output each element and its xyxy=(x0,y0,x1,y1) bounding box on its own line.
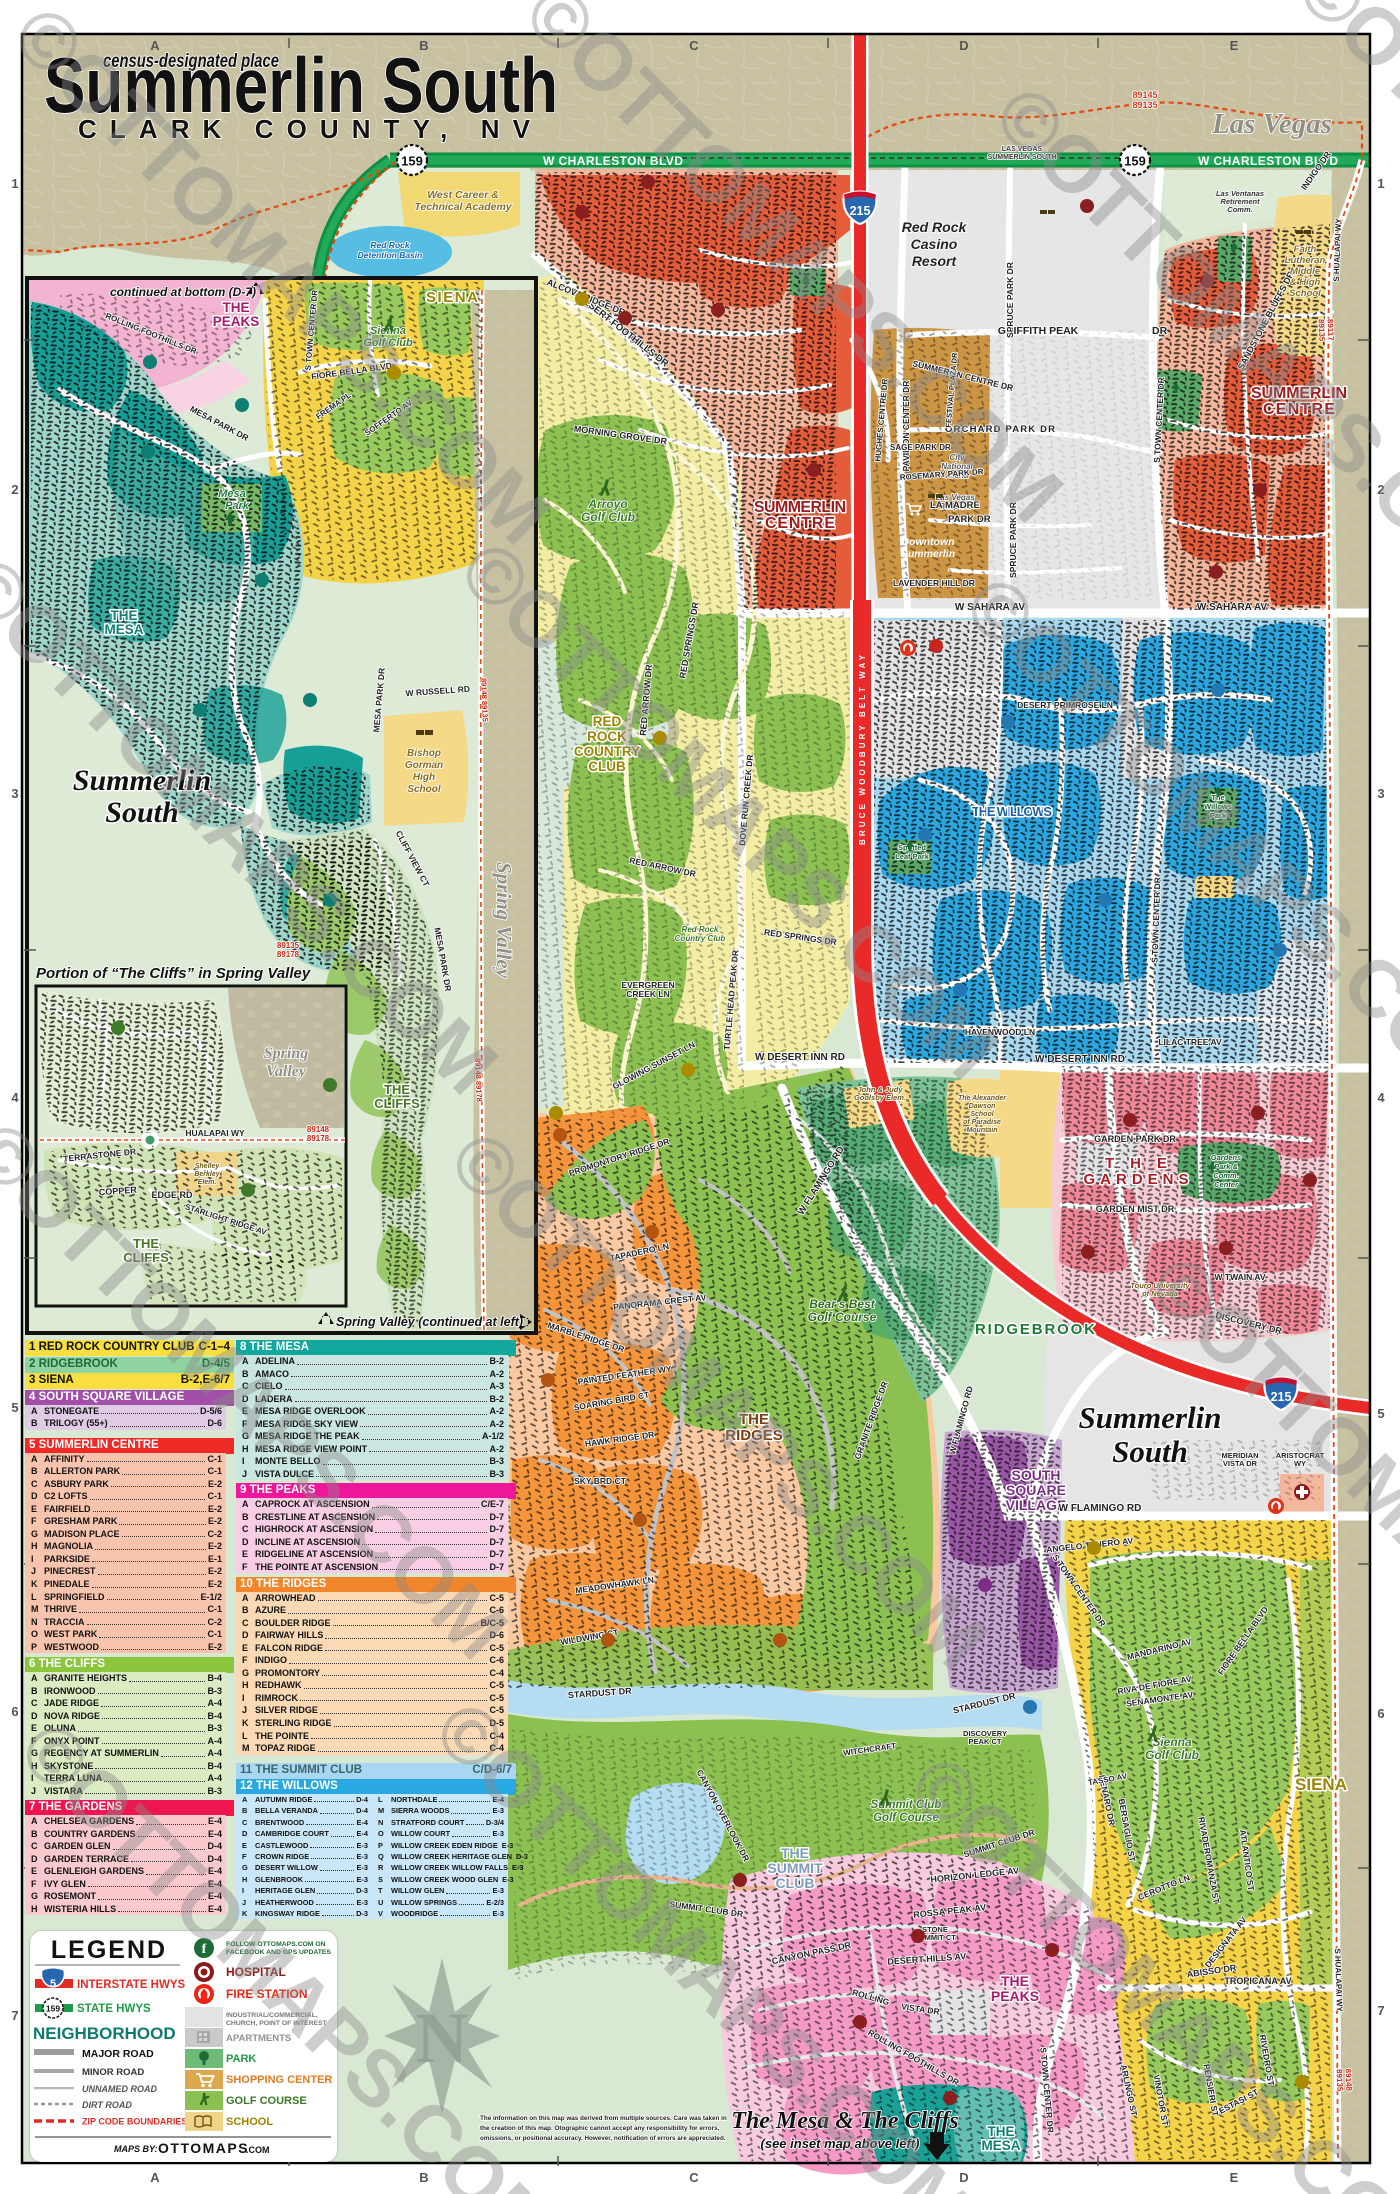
svg-text:CLUB: CLUB xyxy=(588,759,626,774)
svg-text:West Career &: West Career & xyxy=(427,189,499,201)
svg-text:Elem.: Elem. xyxy=(198,1179,217,1186)
svg-text:W DESERT INN RD: W DESERT INN RD xyxy=(755,1052,845,1063)
svg-text:W TWAIN AV: W TWAIN AV xyxy=(1215,1272,1266,1282)
svg-text:W DESERT INN RD: W DESERT INN RD xyxy=(1035,1054,1125,1065)
svg-text:continued at bottom (D-7): continued at bottom (D-7) xyxy=(110,285,256,299)
svg-text:WY: WY xyxy=(1294,1459,1306,1468)
svg-text:CLARK COUNTY, NV: CLARK COUNTY, NV xyxy=(78,114,531,144)
svg-text:LAS VEGAS: LAS VEGAS xyxy=(1002,146,1043,153)
svg-text:INTERSTATE HWYS: INTERSTATE HWYS xyxy=(77,1979,186,1991)
svg-text:CENTRE: CENTRE xyxy=(1263,401,1335,418)
svg-text:THE: THE xyxy=(781,1845,809,1861)
svg-text:DESERT PRIMROSE LN: DESERT PRIMROSE LN xyxy=(1017,700,1113,710)
svg-text:THE: THE xyxy=(988,2124,1015,2139)
svg-text:Golf Club: Golf Club xyxy=(1145,1748,1199,1762)
svg-text:159: 159 xyxy=(46,2004,60,2014)
svg-text:Dawson: Dawson xyxy=(969,1103,996,1110)
svg-text:Summerlin: Summerlin xyxy=(901,548,955,560)
svg-text:SUMMIT: SUMMIT xyxy=(767,1860,823,1876)
svg-text:7: 7 xyxy=(1377,2003,1384,2018)
svg-text:SOUTH: SOUTH xyxy=(1012,1467,1061,1483)
svg-text:89145: 89145 xyxy=(1132,90,1157,100)
svg-text:1: 1 xyxy=(1377,176,1384,191)
svg-text:Red Rock: Red Rock xyxy=(902,219,968,235)
svg-text:APARTMENTS: APARTMENTS xyxy=(226,2033,291,2044)
svg-text:ZIP CODE BOUNDARIES: ZIP CODE BOUNDARIES xyxy=(82,2117,187,2127)
svg-text:3: 3 xyxy=(11,786,18,801)
svg-text:2: 2 xyxy=(11,482,18,497)
svg-text:Las Vegas: Las Vegas xyxy=(1211,108,1332,140)
svg-text:B: B xyxy=(419,2170,428,2185)
svg-text:Technical Academy: Technical Academy xyxy=(414,201,512,213)
svg-text:89135: 89135 xyxy=(1317,319,1327,342)
svg-text:SAGE PARK DR: SAGE PARK DR xyxy=(890,443,951,452)
svg-text:CLUB: CLUB xyxy=(776,1875,815,1891)
svg-text:SPRUCE PARK DR: SPRUCE PARK DR xyxy=(1005,262,1015,338)
svg-text:Spring: Spring xyxy=(264,1045,308,1062)
svg-text:& High: & High xyxy=(1290,277,1321,288)
svg-text:School: School xyxy=(407,784,441,795)
svg-text:Golf Course: Golf Course xyxy=(873,1812,939,1824)
svg-text:SIENA: SIENA xyxy=(426,289,478,306)
svg-text:5: 5 xyxy=(50,1978,56,1990)
svg-text:159: 159 xyxy=(401,154,423,169)
svg-text:Red Rock: Red Rock xyxy=(370,240,410,250)
svg-text:Country Club: Country Club xyxy=(675,934,726,943)
svg-text:89148 89178: 89148 89178 xyxy=(473,1058,484,1102)
svg-text:5: 5 xyxy=(11,1400,18,1415)
svg-text:South: South xyxy=(105,796,178,829)
svg-text:Goolsby Elem.: Goolsby Elem. xyxy=(854,1093,906,1102)
svg-text:NEIGHBORHOOD: NEIGHBORHOOD xyxy=(33,2024,176,2043)
svg-text:3: 3 xyxy=(1377,786,1384,801)
svg-text:Berkley: Berkley xyxy=(194,1171,220,1178)
svg-text:LAVENDER HILL DR: LAVENDER HILL DR xyxy=(893,578,975,588)
svg-text:Middle: Middle xyxy=(1290,266,1321,277)
svg-text:6: 6 xyxy=(1377,1706,1384,1721)
svg-text:SUMMERLIN: SUMMERLIN xyxy=(1251,385,1347,402)
svg-text:The Alexander: The Alexander xyxy=(958,1095,1007,1102)
svg-text:DR: DR xyxy=(1152,325,1168,337)
svg-text:PEAK CT: PEAK CT xyxy=(969,1737,1002,1746)
svg-text:Comm.: Comm. xyxy=(1213,1171,1238,1180)
svg-text:GARDENS: GARDENS xyxy=(1084,1171,1189,1188)
svg-text:OTTOMAPS: OTTOMAPS xyxy=(158,2140,249,2156)
svg-text:Bishop: Bishop xyxy=(407,748,441,759)
svg-text:Faith: Faith xyxy=(1294,244,1317,255)
svg-text:Shelley: Shelley xyxy=(195,1163,221,1170)
svg-text:Spring Valley (continued at le: Spring Valley (continued at left) xyxy=(336,1315,523,1329)
svg-text:A: A xyxy=(150,38,160,53)
svg-text:THE: THE xyxy=(739,1411,769,1428)
svg-text:4: 4 xyxy=(11,1090,19,1105)
svg-text:Summerlin: Summerlin xyxy=(73,764,211,797)
svg-text:Leaf Park: Leaf Park xyxy=(895,852,930,861)
svg-text:HOSPITAL: HOSPITAL xyxy=(226,1965,286,1979)
svg-text:Gorman: Gorman xyxy=(405,760,443,771)
svg-text:Comm.: Comm. xyxy=(1227,205,1252,214)
svg-text:FIRE STATION: FIRE STATION xyxy=(226,1987,308,2001)
svg-text:Center: Center xyxy=(1214,1180,1239,1189)
svg-text:Resort: Resort xyxy=(912,253,958,269)
svg-text:STATE HWYS: STATE HWYS xyxy=(77,2003,151,2015)
svg-text:2: 2 xyxy=(1377,482,1384,497)
svg-text:A: A xyxy=(150,2170,160,2185)
svg-text:The Mesa & The Cliffs: The Mesa & The Cliffs xyxy=(731,2108,959,2134)
svg-text:Downtown: Downtown xyxy=(901,536,954,548)
svg-text:LILAC TREE AV: LILAC TREE AV xyxy=(1158,1037,1222,1047)
svg-text:W FLAMINGO RD: W FLAMINGO RD xyxy=(1059,1503,1142,1514)
svg-text:The information on this map wa: The information on this map was derived … xyxy=(480,2115,727,2122)
svg-text:MINOR ROAD: MINOR ROAD xyxy=(82,2067,144,2078)
svg-text:(see inset map above left): (see inset map above left) xyxy=(761,2136,920,2151)
svg-text:89148 89135: 89148 89135 xyxy=(479,678,490,722)
svg-text:Park &: Park & xyxy=(1214,1162,1238,1171)
svg-text:Park: Park xyxy=(225,500,250,512)
svg-text:D: D xyxy=(959,38,968,53)
svg-text:4: 4 xyxy=(1377,1090,1385,1105)
svg-text:School: School xyxy=(970,1111,994,1118)
svg-text:PARK DR: PARK DR xyxy=(948,514,991,525)
svg-text:W SAHARA AV: W SAHARA AV xyxy=(955,602,1026,613)
svg-text:CREEK LN: CREEK LN xyxy=(626,989,669,999)
svg-text:CHURCH, POINT OF INTEREST: CHURCH, POINT OF INTEREST xyxy=(226,2020,328,2027)
svg-text:VISTA DR: VISTA DR xyxy=(1223,1459,1258,1468)
svg-text:Spring Valley: Spring Valley xyxy=(492,862,516,979)
svg-text:Willows: Willows xyxy=(1204,802,1232,811)
svg-text:High: High xyxy=(413,772,435,783)
svg-text:Park: Park xyxy=(1210,811,1227,820)
svg-text:W CHARLESTON BLVD: W CHARLESTON BLVD xyxy=(543,154,683,168)
svg-text:215: 215 xyxy=(850,204,871,218)
svg-text:RIDGES: RIDGES xyxy=(725,1427,783,1444)
svg-text:Red Rock: Red Rock xyxy=(682,925,719,934)
svg-text:E: E xyxy=(1230,2170,1239,2185)
svg-text:Gardens: Gardens xyxy=(1211,1153,1241,1162)
svg-text:Golf Course: Golf Course xyxy=(808,1310,877,1324)
svg-text:SUMMERLIN: SUMMERLIN xyxy=(754,499,846,516)
svg-text:EDGE RD: EDGE RD xyxy=(151,1190,193,1200)
svg-text:the creation of this map. Otog: the creation of this map. Otographic can… xyxy=(480,2125,720,2132)
svg-text:89135: 89135 xyxy=(277,941,300,950)
svg-text:School: School xyxy=(1289,288,1321,299)
svg-text:Sienna: Sienna xyxy=(1152,1735,1192,1749)
svg-text:CLIFFS: CLIFFS xyxy=(123,1250,169,1265)
svg-text:HAVENWOOD LN: HAVENWOOD LN xyxy=(965,1027,1035,1037)
svg-text:MESA: MESA xyxy=(981,2138,1020,2153)
svg-text:COUNTRY: COUNTRY xyxy=(574,744,640,759)
svg-text:GOLF COURSE: GOLF COURSE xyxy=(226,2095,307,2107)
svg-text:ORCHARD PARK DR: ORCHARD PARK DR xyxy=(945,424,1055,435)
svg-text:THE: THE xyxy=(384,1082,410,1097)
svg-text:CENTRE: CENTRE xyxy=(765,515,835,532)
svg-text:UNNAMED ROAD: UNNAMED ROAD xyxy=(82,2084,157,2094)
svg-text:C: C xyxy=(689,38,699,53)
svg-text:Lutheran: Lutheran xyxy=(1285,255,1326,266)
svg-text:TROPICANA AV: TROPICANA AV xyxy=(1224,1976,1291,1986)
svg-text:SHOPPING CENTER: SHOPPING CENTER xyxy=(226,2074,332,2086)
svg-text:RIDGEBROOK: RIDGEBROOK xyxy=(975,1321,1095,1338)
svg-text:of Nevada: of Nevada xyxy=(1142,1289,1178,1298)
svg-text:Mountain: Mountain xyxy=(966,1127,997,1134)
svg-text:Bear's Best: Bear's Best xyxy=(809,1297,876,1311)
svg-text:f: f xyxy=(202,1942,207,1957)
svg-text:DIRT ROAD: DIRT ROAD xyxy=(82,2100,132,2110)
svg-text:N: N xyxy=(416,1998,468,2078)
svg-text:INDUSTRIAL/COMMERCIAL,: INDUSTRIAL/COMMERCIAL, xyxy=(226,2012,318,2019)
svg-text:D: D xyxy=(959,2170,968,2185)
svg-text:5: 5 xyxy=(1377,1406,1384,1421)
svg-text:PARK: PARK xyxy=(226,2053,256,2065)
svg-text:HUALAPAI WY: HUALAPAI WY xyxy=(185,1128,245,1138)
svg-text:1: 1 xyxy=(11,176,18,191)
svg-text:Valley: Valley xyxy=(266,1063,307,1080)
svg-text:LA MADRE: LA MADRE xyxy=(930,500,980,511)
svg-text:Golf Club: Golf Club xyxy=(581,510,635,524)
svg-text:Casino: Casino xyxy=(911,236,958,252)
svg-text:CLIFFS: CLIFFS xyxy=(374,1096,420,1111)
svg-text:FOLLOW OTTOMAPS.COM ON: FOLLOW OTTOMAPS.COM ON xyxy=(226,1941,326,1948)
svg-text:MAJOR ROAD: MAJOR ROAD xyxy=(82,2048,154,2060)
svg-text:LEGEND: LEGEND xyxy=(51,1936,167,1964)
svg-text:89135: 89135 xyxy=(1132,100,1157,110)
svg-text:VILLAGE: VILLAGE xyxy=(1006,1497,1067,1513)
svg-text:THE: THE xyxy=(133,1236,159,1251)
svg-text:E: E xyxy=(1230,38,1239,53)
svg-text:PEAKS: PEAKS xyxy=(991,1988,1039,2004)
svg-text:W SAHARA AV: W SAHARA AV xyxy=(1197,602,1268,613)
svg-text:GARDEN MIST DR: GARDEN MIST DR xyxy=(1096,1204,1175,1214)
svg-text:omissions, or positional accur: omissions, or positional accuracy. Howev… xyxy=(480,2135,726,2142)
svg-text:PEAKS: PEAKS xyxy=(213,314,260,329)
svg-text:SCHOOL: SCHOOL xyxy=(226,2116,273,2128)
svg-text:89178: 89178 xyxy=(307,1134,330,1143)
svg-text:SPRUCE PARK DR: SPRUCE PARK DR xyxy=(1008,502,1018,578)
svg-text:B: B xyxy=(419,38,428,53)
svg-text:Detention Basin: Detention Basin xyxy=(358,250,423,260)
svg-text:Mesa: Mesa xyxy=(218,488,246,500)
svg-text:City: City xyxy=(949,453,965,462)
svg-text:of Paradise: of Paradise xyxy=(963,1119,1001,1126)
svg-text:S PAVILION CENTER DR: S PAVILION CENTER DR xyxy=(901,381,911,480)
svg-text:89148: 89148 xyxy=(307,1125,330,1134)
svg-text:MESA: MESA xyxy=(104,622,143,637)
svg-text:89178: 89178 xyxy=(277,950,300,959)
svg-text:South: South xyxy=(1112,1434,1188,1469)
svg-text:.COM: .COM xyxy=(246,2145,270,2155)
svg-text:THE: THE xyxy=(111,608,138,623)
svg-text:6: 6 xyxy=(11,1704,18,1719)
svg-text:MAPS BY:: MAPS BY: xyxy=(114,2144,158,2154)
svg-text:THE: THE xyxy=(1001,1973,1029,1989)
svg-text:ROCK: ROCK xyxy=(587,729,627,744)
svg-text:GARDEN PARK DR: GARDEN PARK DR xyxy=(1094,1134,1176,1144)
svg-text:Arroyo: Arroyo xyxy=(587,497,627,511)
svg-text:Portion of “The Cliffs” in Spr: Portion of “The Cliffs” in Spring Valley xyxy=(36,965,311,982)
svg-text:SIENA: SIENA xyxy=(1295,1775,1347,1794)
svg-text:SQUARE: SQUARE xyxy=(1006,1482,1066,1498)
svg-text:THE WILLOWS: THE WILLOWS xyxy=(972,804,1052,819)
svg-text:FACEBOOK AND GPS UPDATES: FACEBOOK AND GPS UPDATES xyxy=(226,1949,331,1956)
svg-text:Golf Club: Golf Club xyxy=(363,337,413,349)
svg-text:THE: THE xyxy=(223,300,250,315)
svg-text:SKY BRD CT: SKY BRD CT xyxy=(574,1476,627,1486)
svg-text:SUMMERLIN SOUTH: SUMMERLIN SOUTH xyxy=(988,154,1057,161)
svg-text:Summerlin: Summerlin xyxy=(1079,1400,1222,1435)
svg-text:7: 7 xyxy=(11,2008,18,2023)
svg-text:89135: 89135 xyxy=(1335,2069,1345,2092)
svg-text:C: C xyxy=(689,2170,699,2185)
svg-text:RED: RED xyxy=(593,714,622,729)
